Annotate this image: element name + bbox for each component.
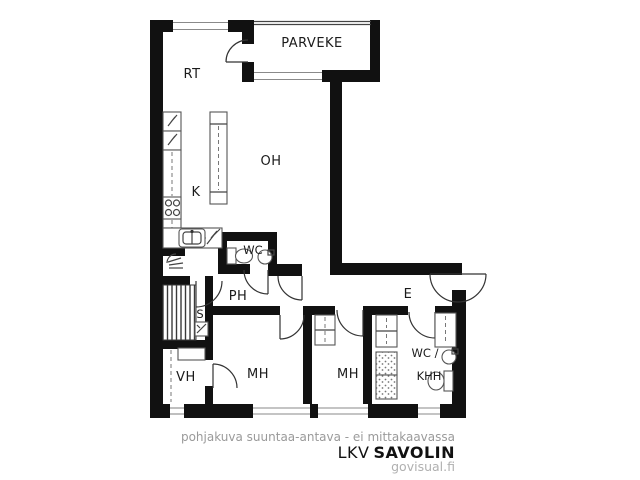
interior-walls [163,232,452,404]
brand-prefix: LKV [338,443,370,462]
wall-mh-divider [303,315,312,404]
wall-vh-divider-bottom [205,386,213,404]
e-closet [435,313,456,347]
balcony-railing [254,22,371,25]
wall-wc-bottom [218,264,250,274]
wall-bottom-a [150,404,170,418]
wall-oh-east [330,70,342,275]
balcony-right-wall [370,20,380,82]
island-cabinet [210,112,227,204]
kitchen-fixtures [163,112,227,248]
wall-hall-top [268,264,302,276]
wall-left [150,20,163,418]
website-link[interactable]: govisual.fi [391,459,455,474]
room-label-wc-khh-2: KHH [417,369,442,383]
room-label-parveke: PARVEKE [281,36,343,51]
door-mh2 [337,310,363,336]
balcony-pier-bottom [242,62,254,82]
wall-mh2-khh [363,306,372,404]
window-bottom-1 [170,404,184,418]
room-label-k: K [191,185,200,200]
window-bottom-2 [253,404,310,418]
fridge-icon [163,112,181,131]
room-label-vh: VH [176,370,196,385]
room-label-s: S [196,307,203,321]
wall-sauna-right [205,276,213,348]
wall-vh-divider-top [205,348,213,360]
window-balcony [254,70,322,82]
window-bottom-3 [318,404,368,418]
wall-bottom-b [184,404,253,418]
room-label-e: E [404,287,413,302]
room-label-mh1: MH [247,367,269,382]
sauna-benches [163,285,196,340]
footer: pohjakuva suuntaa-antava - ei mittakaava… [181,430,455,474]
disclaimer-text: pohjakuva suuntaa-antava - ei mittakaava… [181,430,455,444]
room-label-oh: OH [260,154,281,169]
shower-icon [167,254,183,268]
wall-bottom-c [310,404,318,418]
window-rt-top [173,20,228,32]
floor-plan-canvas: PARVEKE RT OH K WC PH S E VH MH MH WC / … [0,0,640,480]
room-label-ph: PH [229,289,248,304]
freezer-icon [163,131,181,150]
wall-corridor-a [213,306,280,315]
room-label-wc-khh-1: WC / [412,346,439,360]
wall-sauna-top [163,276,190,285]
sink-icon [179,229,205,247]
wall-bottom-e [440,404,466,418]
door-hall-oh [278,276,302,300]
floor-plan-page: PARVEKE RT OH K WC PH S E VH MH MH WC / … [0,0,640,480]
door-vh [213,364,237,388]
stove-icon [163,197,181,219]
sauna-heater-icon [195,322,208,336]
wall-top-a [150,20,175,32]
room-label-wc: WC [243,243,262,257]
wall-corridor-b [303,306,335,315]
washing-machine-icon [376,352,397,399]
mh2-wardrobe [315,315,335,345]
room-label-mh2: MH [337,367,359,382]
khh-cabinets [376,315,397,347]
door-wc-khh [409,312,435,338]
room-label-rt: RT [183,67,200,82]
window-bottom-4 [418,404,440,418]
wall-bottom-d [368,404,418,418]
door-mh1 [280,315,304,339]
wall-e-top [330,263,462,275]
